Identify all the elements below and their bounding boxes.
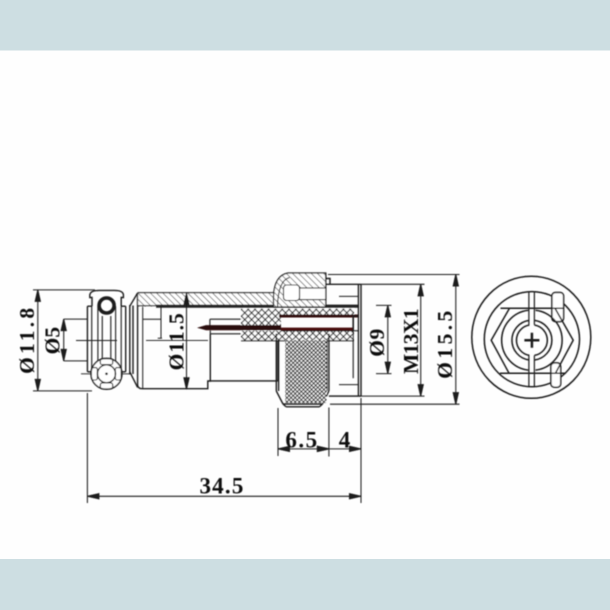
svg-text:Ø15.5: Ø15.5 [433,307,457,378]
svg-text:34.5: 34.5 [199,474,244,499]
svg-text:Ø11.8: Ø11.8 [15,305,39,374]
svg-text:Ø9: Ø9 [365,328,389,356]
svg-text:Ø5: Ø5 [40,327,64,354]
svg-text:4: 4 [339,428,351,453]
svg-text:Ø11.5: Ø11.5 [165,312,189,370]
svg-text:6.5: 6.5 [285,428,318,453]
svg-text:M13X1: M13X1 [399,309,423,374]
